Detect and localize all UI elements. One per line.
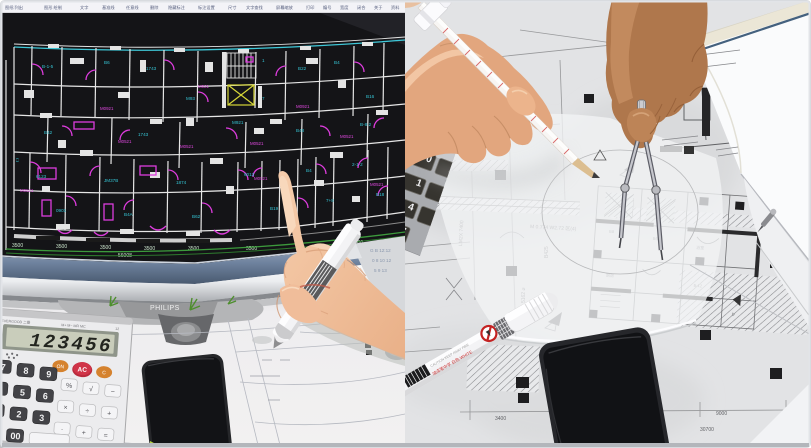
svg-text:PHILIPS: PHILIPS — [150, 305, 180, 312]
svg-text:图纸:列出: 图纸:列出 — [5, 4, 23, 11]
svg-text:图形 绘制: 图形 绘制 — [44, 4, 62, 11]
svg-text:3500: 3500 — [12, 243, 23, 249]
svg-text:+: + — [107, 411, 112, 418]
svg-text:3500: 3500 — [188, 246, 199, 252]
svg-text:B-8-2: B-8-2 — [360, 122, 372, 127]
svg-text:D: D — [731, 311, 734, 316]
svg-text:编号: 编号 — [323, 4, 331, 11]
svg-text:M0521: M0521 — [250, 141, 264, 146]
svg-text:5: 5 — [20, 387, 26, 397]
svg-text:任意线: 任意线 — [126, 4, 139, 11]
svg-text:−: − — [110, 389, 115, 396]
svg-text:%: % — [66, 383, 73, 390]
svg-text:B19: B19 — [270, 206, 279, 211]
svg-text:00: 00 — [10, 431, 21, 442]
svg-text:30700: 30700 — [700, 427, 714, 433]
svg-text:尺寸: 尺寸 — [228, 4, 236, 11]
svg-text:B4A: B4A — [124, 212, 134, 217]
svg-text:M0521: M0521 — [20, 188, 34, 193]
svg-text:12: 12 — [115, 327, 119, 331]
svg-text:9: 9 — [46, 369, 52, 379]
svg-text:B4: B4 — [306, 168, 312, 173]
svg-text:⎕: ⎕ — [16, 158, 19, 163]
svg-text:M0521: M0521 — [370, 182, 384, 187]
svg-text:0901: 0901 — [56, 208, 67, 213]
svg-text:B42: B42 — [44, 130, 53, 135]
svg-text:隐藏标注: 隐藏标注 — [168, 4, 186, 11]
svg-text:9000: 9000 — [716, 411, 727, 417]
svg-text:1743: 1743 — [146, 66, 157, 71]
svg-text:M921: M921 — [232, 120, 244, 125]
svg-text:÷: ÷ — [85, 408, 89, 415]
svg-text:6123: 6123 — [36, 174, 47, 179]
svg-text:1743: 1743 — [138, 132, 149, 137]
svg-text:3: 3 — [39, 413, 45, 423]
svg-text:=: = — [103, 432, 108, 439]
svg-text:闭合: 闭合 — [357, 4, 366, 11]
svg-text:ON: ON — [56, 364, 64, 371]
svg-text:6013: 6013 — [244, 172, 255, 177]
svg-text:B16: B16 — [366, 94, 375, 99]
svg-text:M0521: M0521 — [254, 176, 268, 181]
svg-text:√: √ — [89, 385, 94, 393]
svg-text:+: + — [82, 430, 87, 437]
svg-text:G B 12:12: G B 12:12 — [370, 248, 391, 253]
svg-text:2: 2 — [16, 409, 22, 419]
svg-text:M921: M921 — [198, 84, 210, 89]
svg-text:3500: 3500 — [100, 245, 111, 251]
svg-text:M0521: M0521 — [180, 144, 194, 149]
svg-text:标注设置: 标注设置 — [198, 4, 215, 11]
svg-text:3400: 3400 — [495, 416, 506, 422]
svg-text:文字查找: 文字查找 — [246, 4, 264, 11]
svg-text:B62: B62 — [192, 214, 201, 219]
svg-text:JM37B: JM37B — [104, 178, 118, 183]
svg-text:M93: M93 — [186, 96, 195, 101]
svg-text:5 9 13: 5 9 13 — [374, 268, 387, 273]
svg-text:文字: 文字 — [80, 4, 88, 11]
svg-text:·: · — [61, 426, 64, 433]
svg-text:基准线: 基准线 — [102, 4, 115, 11]
svg-text:2-1-2: 2-1-2 — [352, 162, 363, 167]
svg-text:M0521: M0521 — [340, 134, 354, 139]
svg-text:删除: 删除 — [150, 4, 159, 11]
svg-text:3500: 3500 — [56, 244, 67, 250]
svg-text:B22: B22 — [298, 66, 307, 71]
svg-text:8: 8 — [23, 366, 29, 376]
svg-text:屏幕缩放: 屏幕缩放 — [276, 4, 294, 11]
svg-text:关于: 关于 — [374, 4, 382, 11]
svg-text:宽度: 宽度 — [340, 4, 349, 11]
svg-text:B4: B4 — [334, 60, 340, 65]
svg-text:B18: B18 — [376, 192, 385, 197]
svg-text:打印: 打印 — [306, 4, 314, 11]
svg-text:1: 1 — [262, 58, 265, 63]
svg-text:×: × — [63, 404, 68, 411]
svg-text:B-1-5: B-1-5 — [42, 64, 54, 69]
svg-text:M0521: M0521 — [118, 139, 132, 144]
svg-text:6: 6 — [42, 391, 48, 401]
svg-text:7: 7 — [262, 96, 265, 101]
svg-text:M0921: M0921 — [100, 106, 114, 111]
svg-text:7+8: 7+8 — [326, 198, 334, 203]
svg-text:1874: 1874 — [176, 180, 187, 185]
svg-text:B48: B48 — [296, 128, 305, 133]
svg-text:M0921: M0921 — [296, 104, 310, 109]
svg-text:资料: 资料 — [391, 4, 400, 11]
svg-text:AC: AC — [77, 366, 87, 374]
svg-text:0 8 10 12: 0 8 10 12 — [372, 258, 392, 263]
svg-text:B6: B6 — [104, 60, 110, 65]
